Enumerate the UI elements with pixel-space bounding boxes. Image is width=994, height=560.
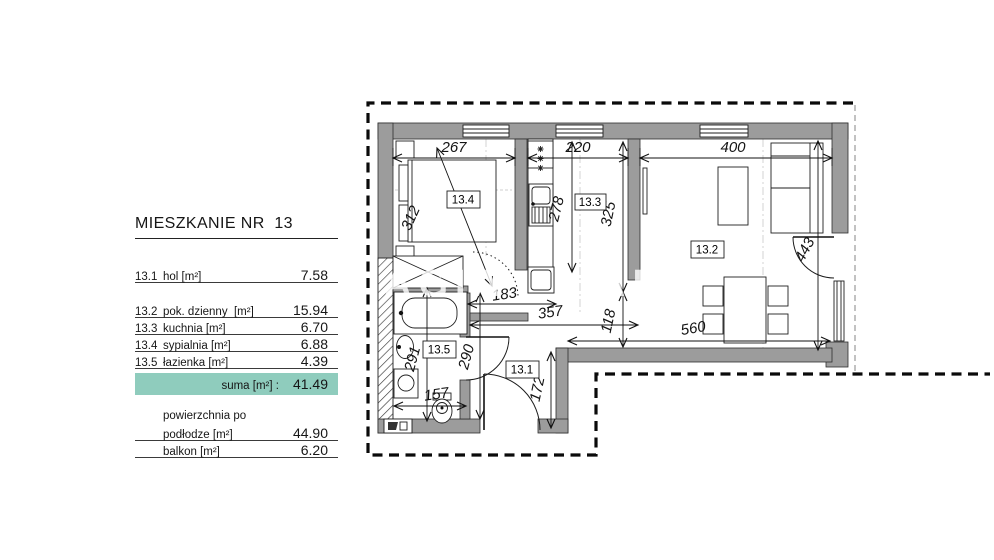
dim-hall-depth: 290 xyxy=(455,342,478,372)
svg-text:13.4: 13.4 xyxy=(452,195,475,207)
room-label-living: 13.2 xyxy=(691,241,724,258)
fridge xyxy=(528,267,554,293)
dim-passage-depth: 118 xyxy=(598,307,620,335)
dim-living-depth: 443 xyxy=(792,234,819,265)
floor-plan: 267 220 400 312 278 325 118 443 183 357 … xyxy=(0,0,994,560)
window-living xyxy=(700,125,748,137)
washing-machine xyxy=(394,369,418,398)
dim-kitchen-width: 220 xyxy=(564,139,591,156)
window-balcony-side xyxy=(834,281,844,341)
svg-text:13.1: 13.1 xyxy=(511,365,533,377)
dim-bath-width: 157 xyxy=(423,384,451,404)
utility-shaft xyxy=(384,419,412,433)
dim-bedroom-width: 267 xyxy=(440,139,467,156)
room-label-bedroom: 13.4 xyxy=(447,191,480,208)
watermark-text: AD xyxy=(598,263,667,305)
dim-entry-depth: 172 xyxy=(527,374,549,403)
svg-text:13.5: 13.5 xyxy=(428,345,450,357)
floorplan-page: { "legend": { "title": "MIESZKANIE NR 13… xyxy=(0,0,994,560)
window-bedroom xyxy=(463,125,509,137)
stove xyxy=(528,141,553,171)
room-label-bath: 13.5 xyxy=(423,341,456,358)
radiator xyxy=(643,168,647,214)
watermark-text: AGIA xyxy=(384,263,507,305)
window-kitchen xyxy=(556,125,603,137)
room-label-hall: 13.1 xyxy=(506,361,539,378)
room-label-kitchen: 13.3 xyxy=(575,194,606,210)
dim-living-width: 400 xyxy=(720,139,746,156)
svg-text:13.2: 13.2 xyxy=(696,245,718,257)
sofa xyxy=(771,143,823,233)
svg-text:13.3: 13.3 xyxy=(579,197,601,209)
bed xyxy=(396,141,496,261)
dining-table xyxy=(703,277,788,343)
dim-hall-living-width: 357 xyxy=(537,302,565,322)
dim-living-bottom-width: 560 xyxy=(679,318,707,339)
coffee-table xyxy=(718,167,748,225)
